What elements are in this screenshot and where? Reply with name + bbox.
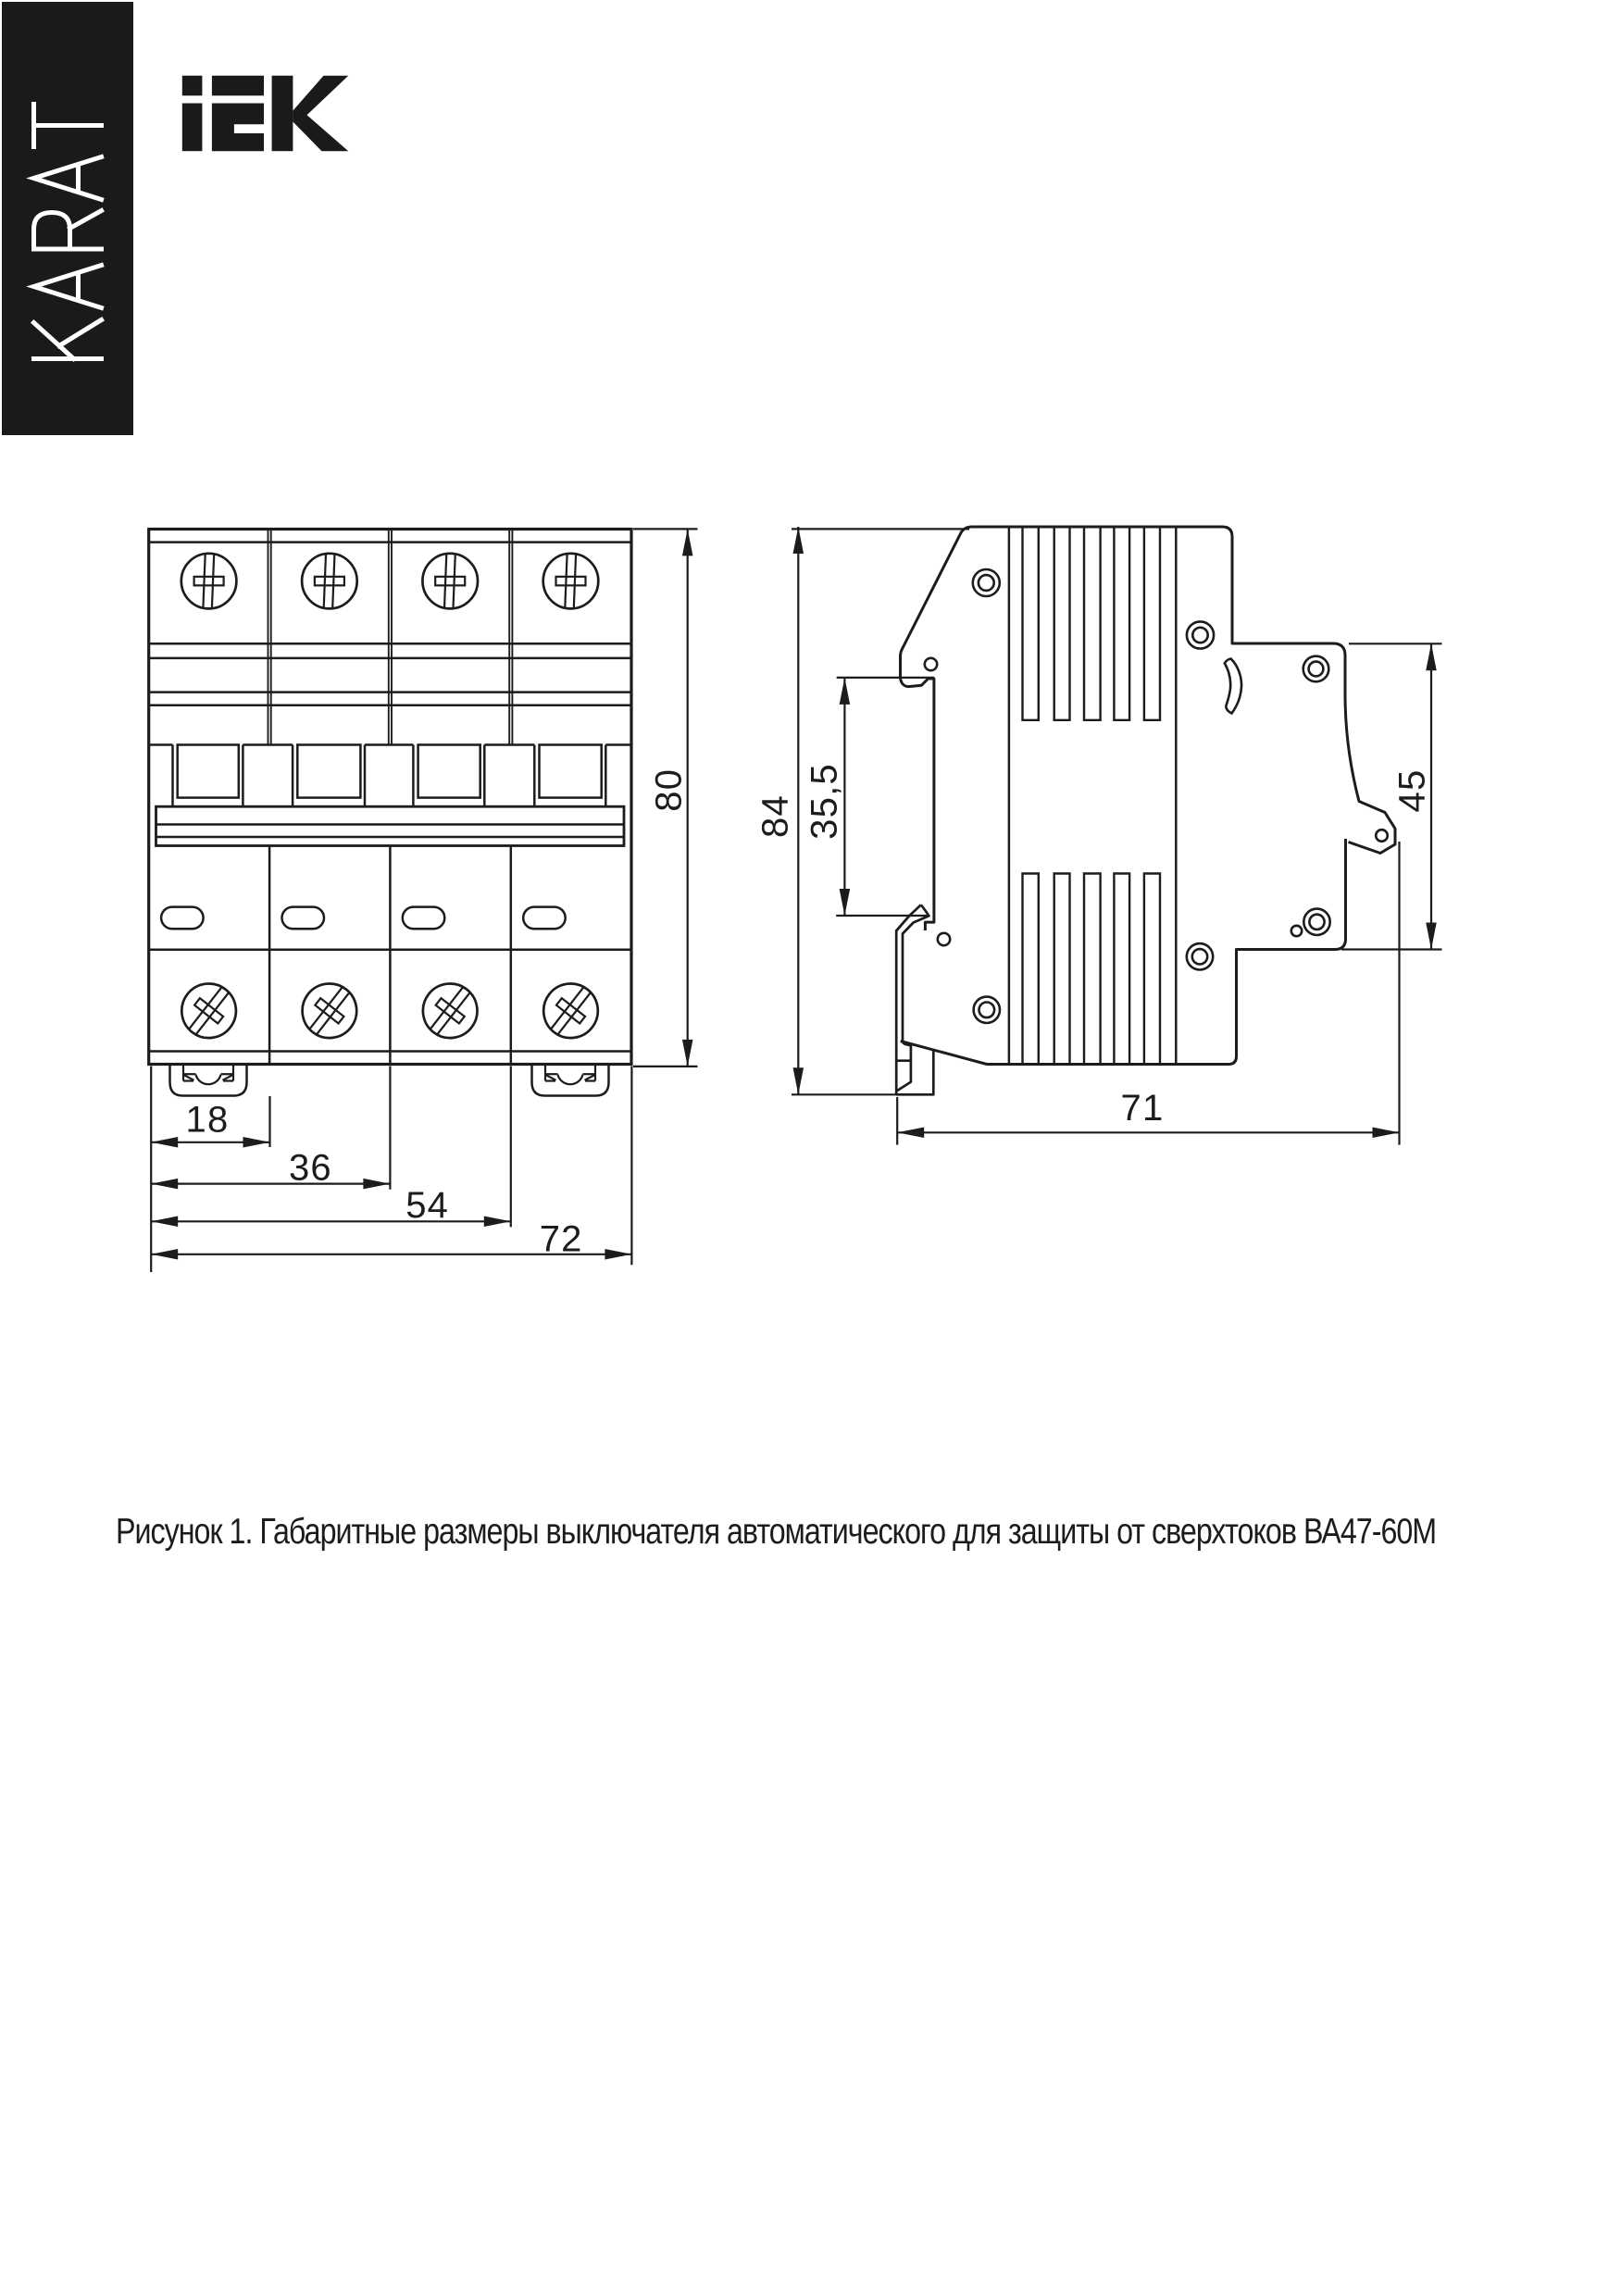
svg-text:72: 72 xyxy=(540,1218,583,1259)
svg-text:36: 36 xyxy=(289,1147,332,1188)
svg-text:18: 18 xyxy=(186,1100,230,1141)
svg-text:71: 71 xyxy=(1121,1088,1165,1129)
svg-text:35,5: 35,5 xyxy=(804,763,845,840)
svg-text:84: 84 xyxy=(755,794,796,838)
svg-text:80: 80 xyxy=(648,768,689,812)
svg-text:45: 45 xyxy=(1392,769,1433,813)
svg-text:54: 54 xyxy=(405,1185,449,1226)
